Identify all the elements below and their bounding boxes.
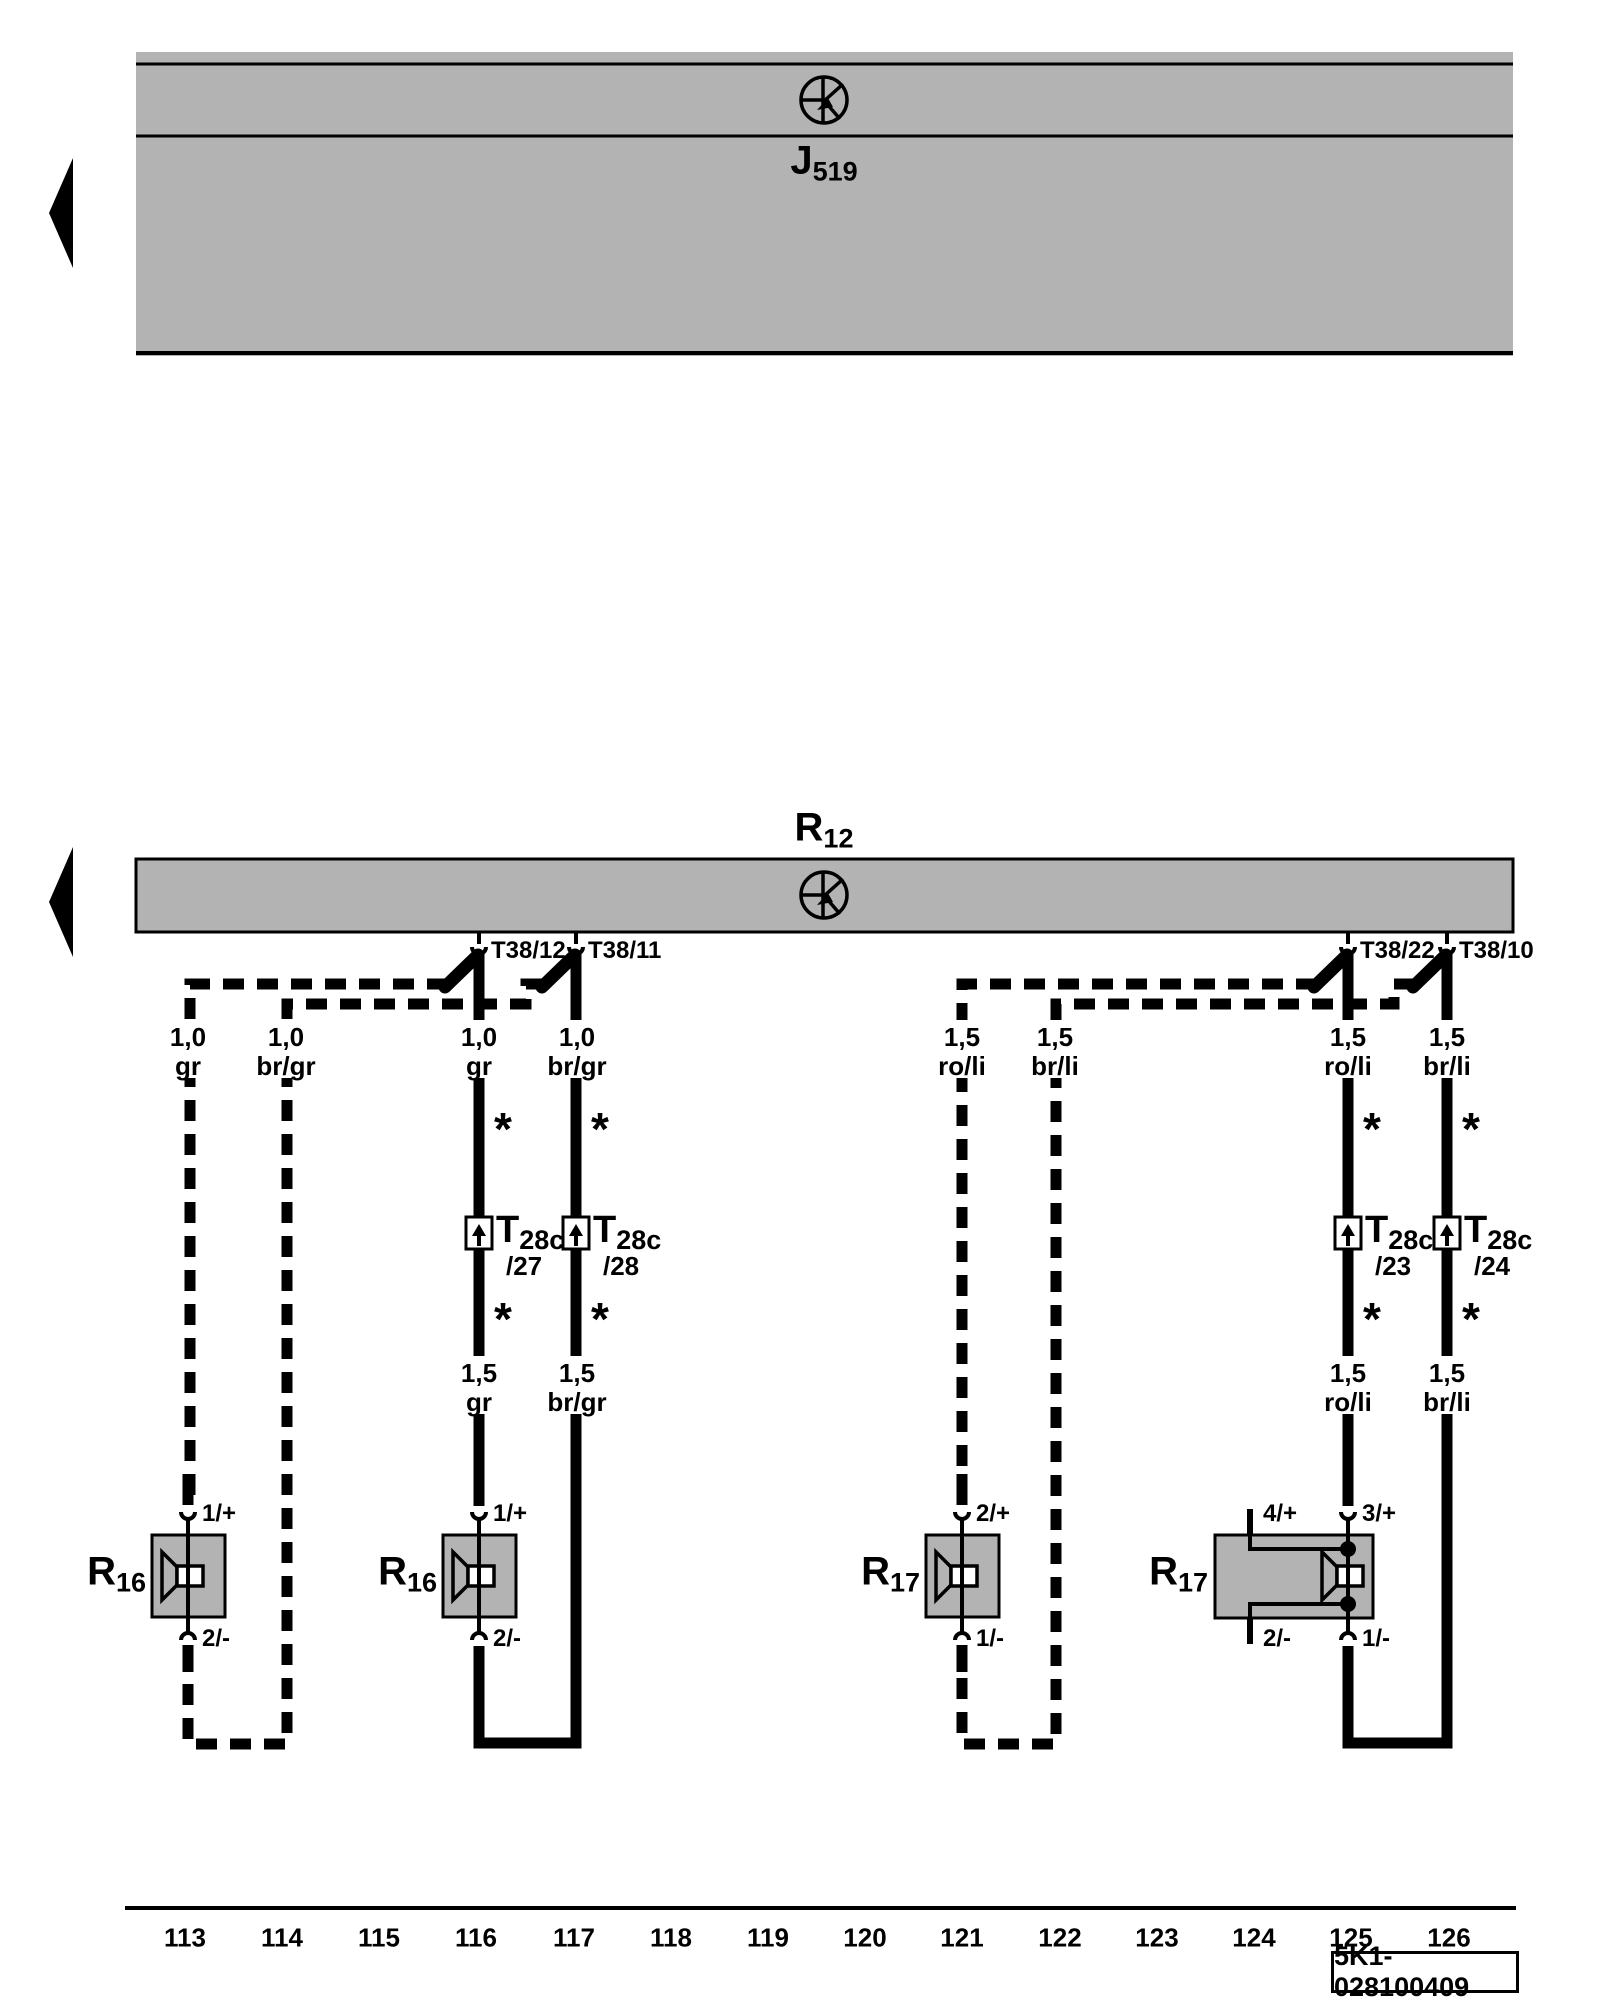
margin-arrow-top <box>49 158 73 268</box>
speaker-pin-label: 2/- <box>202 1625 230 1653</box>
track-number: 119 <box>747 1923 789 1954</box>
margin-arrow-middle <box>49 847 73 957</box>
track-number: 121 <box>940 1923 983 1954</box>
speaker-pin-label: 1/- <box>976 1625 1004 1653</box>
wire-label: 1,5ro/li <box>1324 1359 1372 1417</box>
wire-label: 1,0br/gr <box>256 1023 315 1081</box>
track-number: 117 <box>553 1923 595 1954</box>
speaker-pin-label: 2/+ <box>976 1500 1010 1528</box>
connector-label: T28c/23 <box>1365 1212 1433 1279</box>
wire-label: 1,5gr <box>461 1359 497 1417</box>
speaker-label-r17-left: R17 <box>861 1550 920 1595</box>
connector-label: T28c/28 <box>593 1212 661 1279</box>
track-number: 113 <box>164 1923 206 1954</box>
connector-t28c-27-icon <box>466 1217 492 1249</box>
diagram-code: 5K1-028100409 <box>1334 1941 1516 2000</box>
track-number: 114 <box>261 1923 303 1954</box>
diagram-graphics <box>0 0 1600 2000</box>
speaker-pin-label: 4/+ <box>1263 1500 1297 1528</box>
footnote-mark: * <box>494 1296 512 1342</box>
speaker-pin-label: 3/+ <box>1362 1500 1396 1528</box>
control-module-label: J519 <box>790 139 857 184</box>
speaker-label-r17-right: R17 <box>1149 1550 1208 1595</box>
track-number: 118 <box>650 1923 692 1954</box>
footnote-mark: * <box>1462 1296 1480 1342</box>
speaker-pin-label: 1/- <box>1362 1625 1390 1653</box>
wire-label: 1,0br/gr <box>547 1023 606 1081</box>
wire-label: 1,5ro/li <box>938 1023 986 1081</box>
connector-label: T28c/27 <box>496 1212 564 1279</box>
connector-t28c-28-icon <box>563 1217 589 1249</box>
speaker-label-r16-mid: R16 <box>378 1550 437 1595</box>
track-number: 122 <box>1038 1923 1081 1954</box>
wire-label: 1,0gr <box>461 1023 497 1081</box>
wire-label: 1,5br/li <box>1031 1023 1079 1081</box>
wire-label: 1,5br/li <box>1423 1023 1471 1081</box>
track-number: 123 <box>1135 1923 1178 1954</box>
footnote-mark: * <box>494 1106 512 1152</box>
bar-pin-label: T38/11 <box>588 937 661 965</box>
speaker-pin-label: 2/- <box>1263 1625 1291 1653</box>
footnote-mark: * <box>591 1296 609 1342</box>
connector-t28c-24-icon <box>1434 1217 1460 1249</box>
track-number: 116 <box>455 1923 497 1954</box>
label-gaps <box>154 1020 1481 1414</box>
footnote-mark: * <box>1462 1106 1480 1152</box>
wire-label: 1,0gr <box>170 1023 206 1081</box>
speaker-pin-label: 2/- <box>493 1625 521 1653</box>
track-number: 120 <box>843 1923 886 1954</box>
footnote-mark: * <box>591 1106 609 1152</box>
control-module-box <box>136 52 1513 356</box>
wiring-diagram-page: J519 R12 R16 R16 R17 R17 T38/12 T38/11 T… <box>0 0 1600 2000</box>
wire-label: 1,5ro/li <box>1324 1023 1372 1081</box>
track-number: 124 <box>1232 1923 1275 1954</box>
amplifier-label: R12 <box>795 806 854 851</box>
speaker-pin-label: 1/+ <box>202 1500 236 1528</box>
amplifier-bar <box>136 859 1513 932</box>
wire-label: 1,5br/gr <box>547 1359 606 1417</box>
bar-pin-label: T38/22 <box>1360 937 1435 965</box>
connector-t28c-23-icon <box>1335 1217 1361 1249</box>
footnote-mark: * <box>1363 1296 1381 1342</box>
junction-dot <box>1340 1541 1356 1557</box>
diagram-code-box: 5K1-028100409 <box>1331 1951 1519 1993</box>
connector-label: T28c/24 <box>1464 1212 1532 1279</box>
wire-label: 1,5br/li <box>1423 1359 1471 1417</box>
footnote-mark: * <box>1363 1106 1381 1152</box>
speaker-label-r16-left: R16 <box>87 1550 146 1595</box>
wire-ro-li-dashed <box>962 984 1317 1504</box>
bar-pin-label: T38/10 <box>1459 937 1534 965</box>
bar-pin-label: T38/12 <box>491 937 566 965</box>
track-number: 115 <box>358 1923 400 1954</box>
speaker-pin-label: 1/+ <box>493 1500 527 1528</box>
junction-dot <box>1340 1596 1356 1612</box>
dashed-wires <box>188 984 1415 1744</box>
